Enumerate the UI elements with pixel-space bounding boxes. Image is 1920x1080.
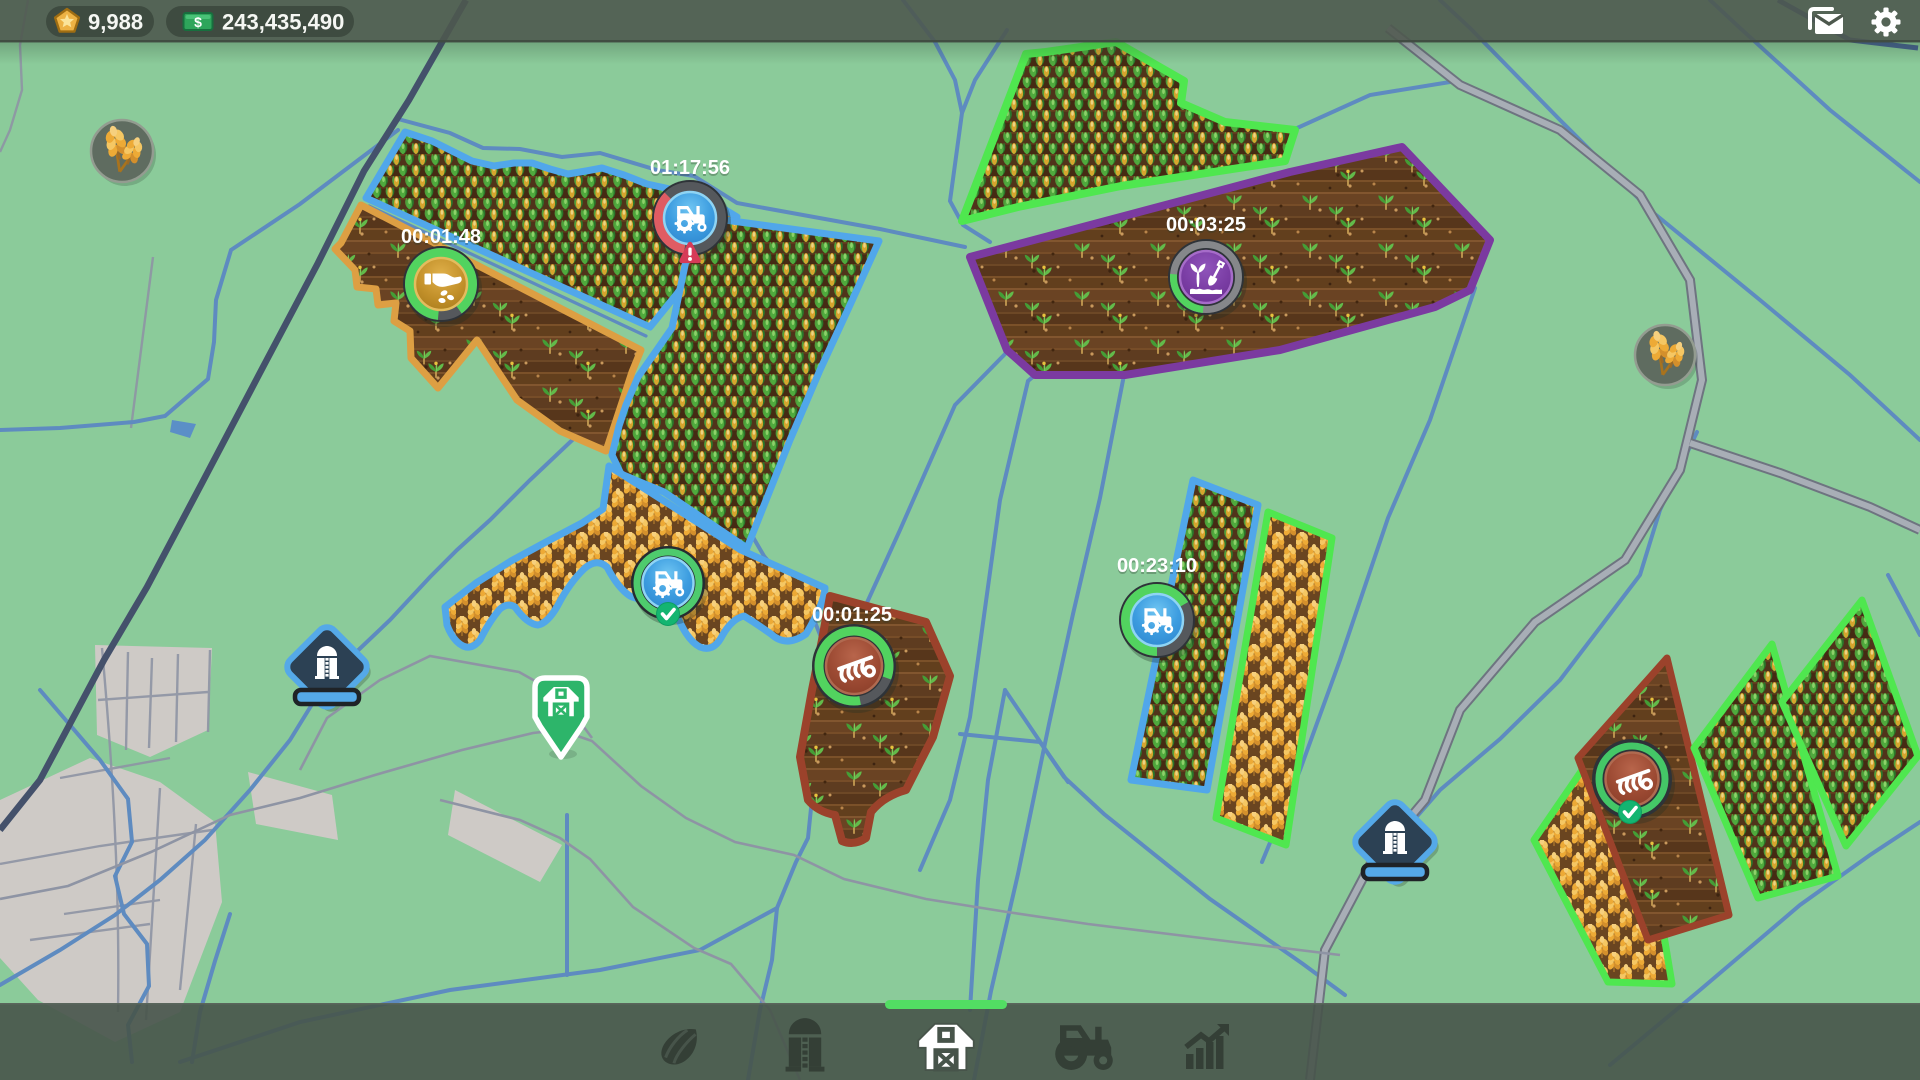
svg-text:00:03:25: 00:03:25 <box>1166 214 1246 236</box>
svg-text:00:23:10: 00:23:10 <box>1117 555 1197 577</box>
svg-text:9,988: 9,988 <box>88 10 143 35</box>
svg-text:00:01:25: 00:01:25 <box>812 604 892 626</box>
svg-text:$: $ <box>194 14 202 30</box>
svg-text:01:17:56: 01:17:56 <box>650 157 730 179</box>
svg-text:00:01:48: 00:01:48 <box>401 226 481 248</box>
svg-text:243,435,490: 243,435,490 <box>222 10 344 35</box>
